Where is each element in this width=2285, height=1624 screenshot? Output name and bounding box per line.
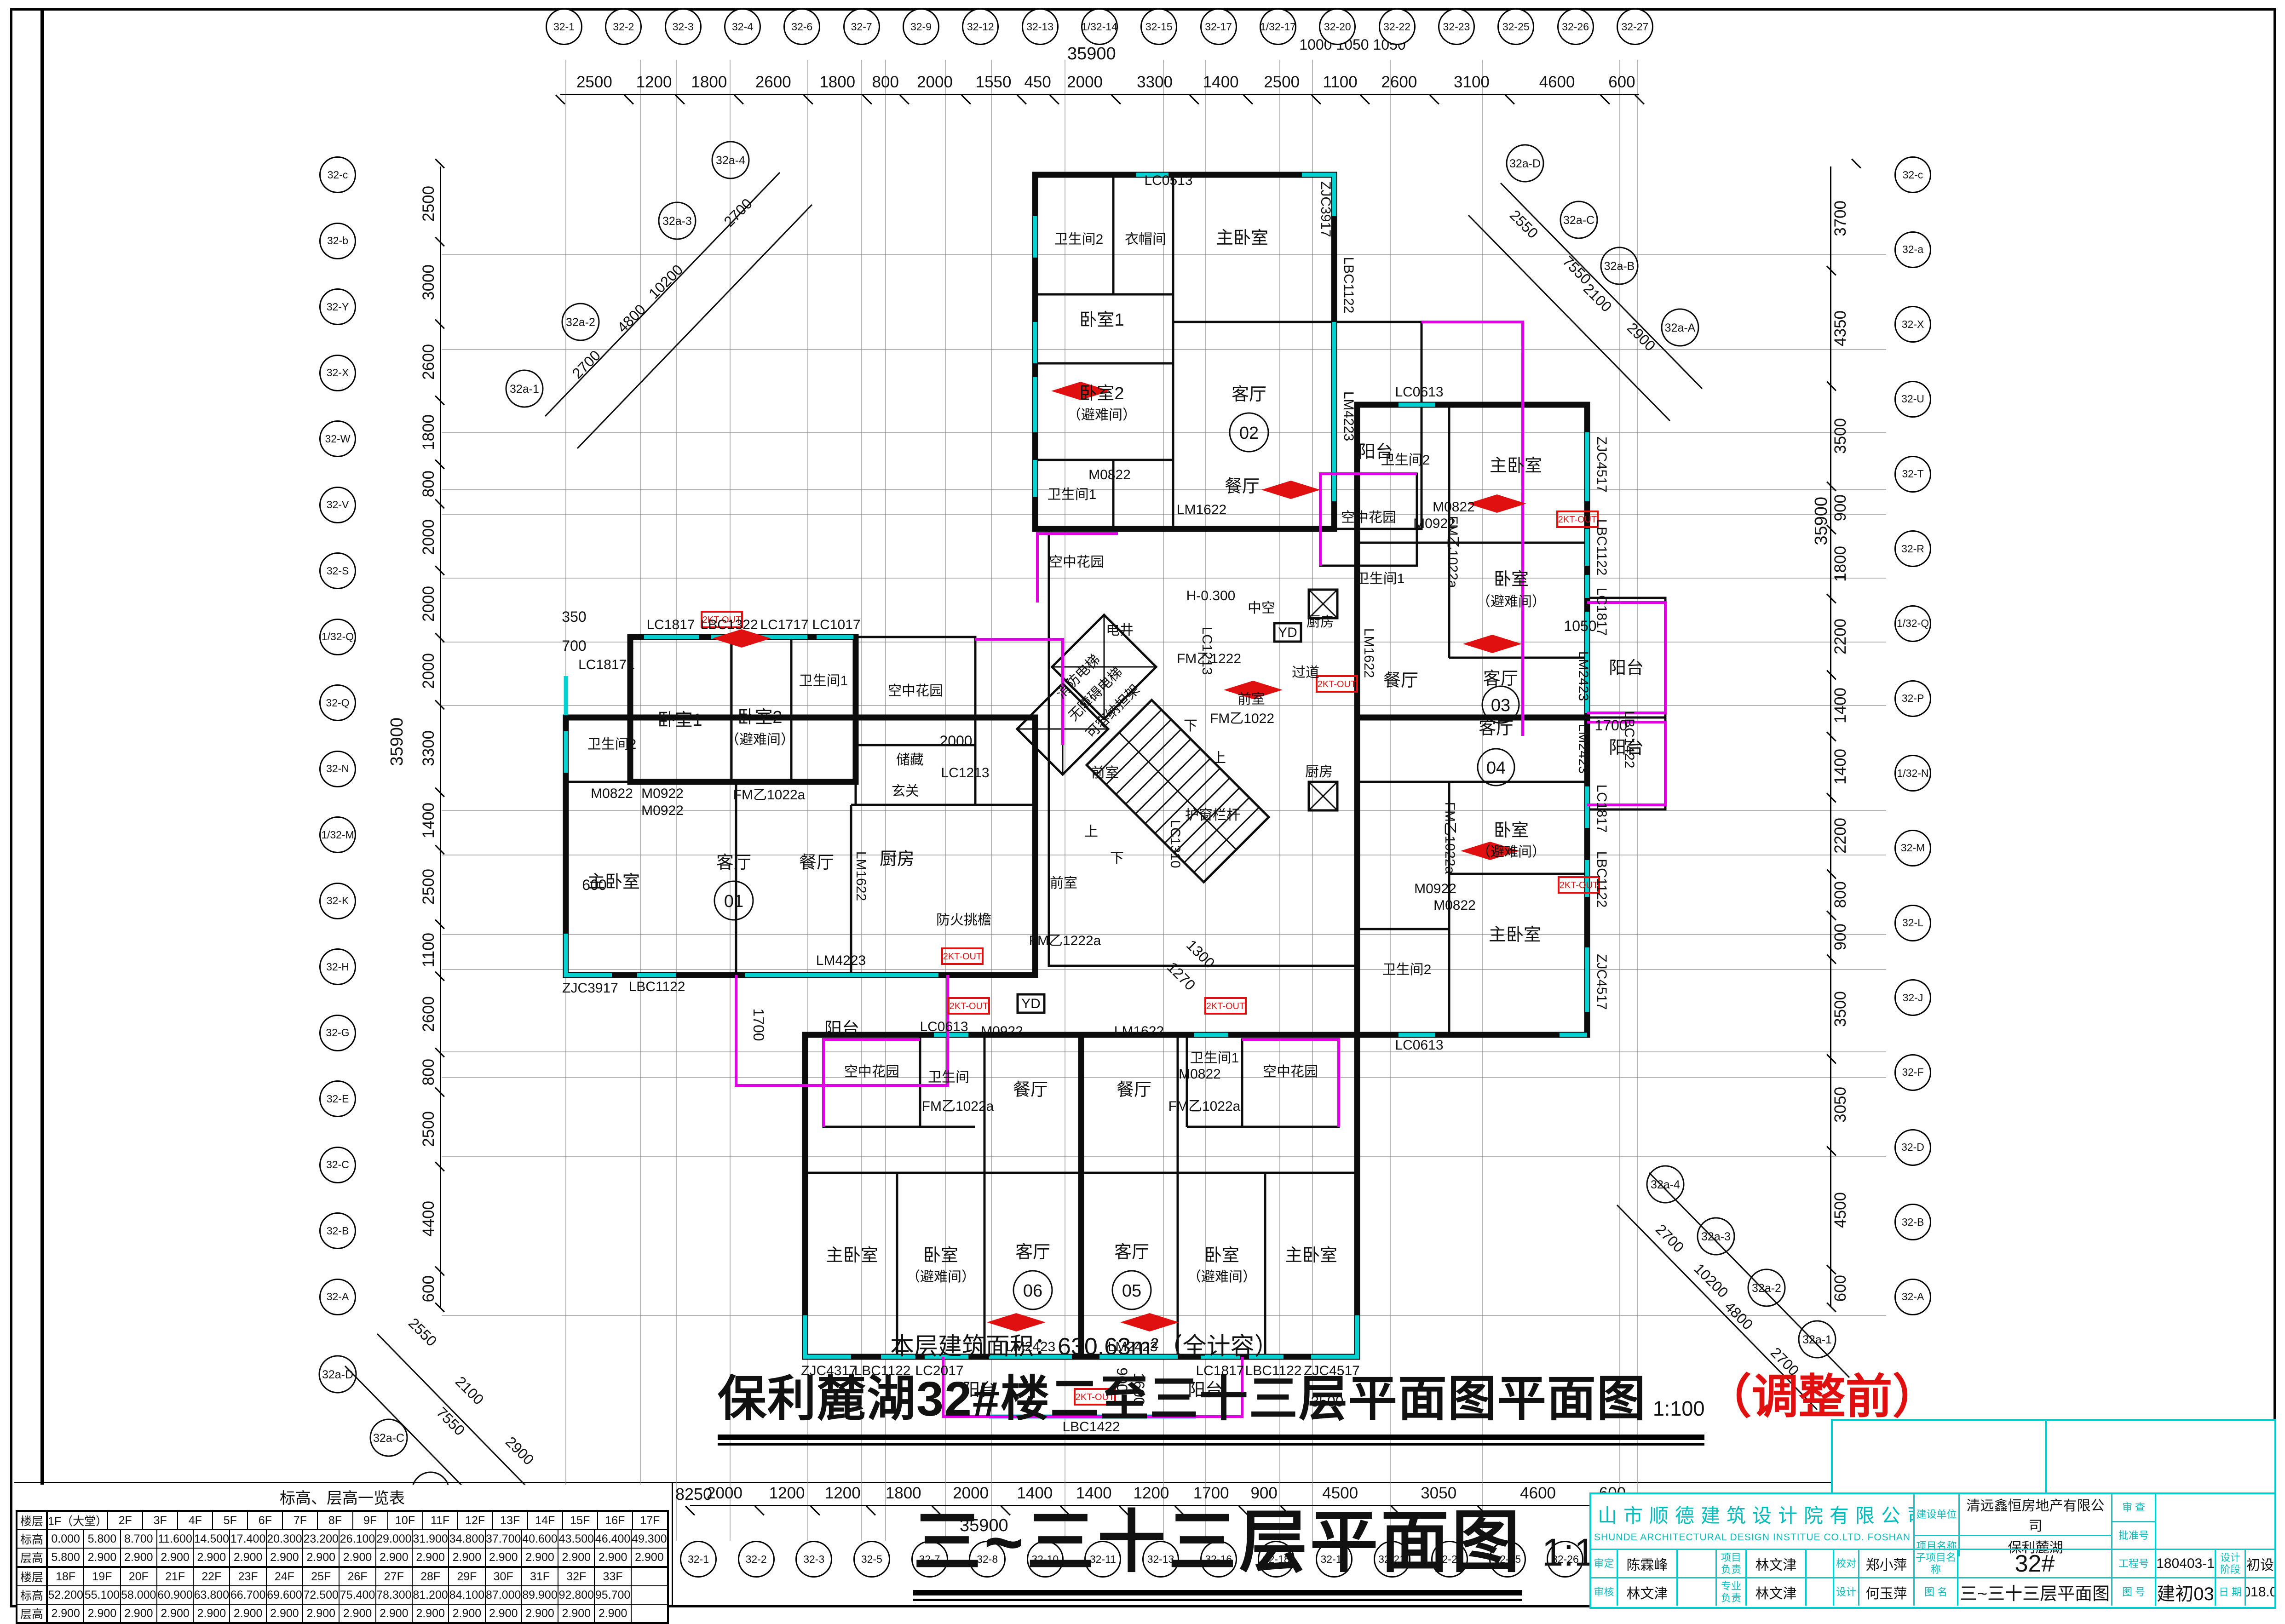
room-label: 卧室2 — [1079, 384, 1124, 403]
svg-text:LC1817: LC1817 — [646, 617, 695, 632]
table-cell: 16F — [597, 1512, 632, 1529]
room-label: 客厅 — [1114, 1243, 1149, 1262]
svg-text:1270: 1270 — [1164, 958, 1199, 993]
table-cell: 2.900 — [412, 1549, 448, 1566]
room-label: 餐厅 — [1383, 671, 1418, 690]
table-cell: 19F — [83, 1568, 120, 1585]
table-cell: 92.800 — [558, 1586, 594, 1604]
checker-name: 郑小萍 — [1858, 1550, 1913, 1577]
table-cell: 2.900 — [120, 1549, 156, 1566]
room-label: 客厅 — [1479, 719, 1514, 738]
svg-text:FM乙1022a: FM乙1022a — [1445, 516, 1460, 588]
table-cell: 30F — [485, 1568, 521, 1585]
diagonal-dim: 2100 — [452, 1373, 487, 1408]
unit-number: 04 — [1486, 758, 1506, 778]
svg-text:LC1817a: LC1817a — [578, 657, 634, 672]
svg-text:LC1017: LC1017 — [812, 617, 860, 632]
axis-bubble: 32a-3 — [1701, 1230, 1731, 1243]
room-label: 玄关 — [892, 784, 919, 799]
svg-text:LM4223: LM4223 — [816, 953, 866, 968]
dimension-segment: 2600 — [1364, 74, 1434, 94]
spare-cell — [1676, 1550, 1715, 1577]
spare-cell — [1805, 1550, 1833, 1577]
svg-text:LBC1322: LBC1322 — [700, 617, 758, 632]
grid-axis-bubble: 32-E — [319, 1080, 356, 1117]
axis-bubble: 32a-A — [1665, 321, 1696, 334]
axis-bubble: 32a-D — [322, 1368, 353, 1381]
grid-axis-bubble: 32-S — [319, 552, 356, 589]
room-label: 餐厅 — [1117, 1080, 1151, 1100]
table-cell: 2.900 — [448, 1605, 484, 1622]
table-cell: 2.900 — [339, 1549, 375, 1566]
room-label: （避难间） — [1477, 594, 1546, 609]
svg-text:LC1310: LC1310 — [1168, 820, 1183, 868]
diagonal-dim: 7550 — [1560, 252, 1594, 287]
room-label: 阳台 — [824, 1020, 859, 1039]
diagonal-dim: 10200 — [1691, 1260, 1732, 1301]
dimension-segment: 800 — [1831, 874, 1856, 915]
grid-axis-bubble: 32-1 — [680, 1541, 717, 1578]
table-cell: 18F — [47, 1568, 83, 1585]
room-label: 餐厅 — [1013, 1080, 1048, 1100]
table-cell: 26F — [339, 1568, 375, 1585]
svg-text:M0922: M0922 — [1414, 881, 1456, 896]
svg-text:FM乙1022a: FM乙1022a — [1442, 802, 1457, 874]
row-header: 层高 — [17, 1549, 47, 1566]
table-cell: 87.000 — [485, 1586, 521, 1604]
dimension-segment: 2200 — [1831, 598, 1856, 675]
grid-axis-bubble: 32-4 — [724, 8, 761, 45]
table-grid: 楼层1F（大堂）2F3F4F5F6F7F8F9F10F11F12F13F14F1… — [16, 1510, 669, 1624]
table-cell: 4F — [177, 1512, 212, 1529]
table-cell: 2.900 — [631, 1549, 667, 1566]
svg-text:2KT-OUT: 2KT-OUT — [950, 1001, 988, 1011]
table-cell: 9F — [352, 1512, 387, 1529]
table-cell: 2.900 — [594, 1605, 630, 1622]
dimension-segment: 2600 — [415, 976, 440, 1052]
grid-axis-bubble: 32-2 — [605, 8, 642, 45]
dimension-segment: 1100 — [1316, 74, 1364, 94]
dimension-segment: 3100 — [1434, 74, 1510, 94]
table-cell: 2.900 — [375, 1549, 412, 1566]
room-label: 客厅 — [1015, 1243, 1050, 1262]
designer-name: 何玉萍 — [1858, 1578, 1913, 1606]
dimension-segment: 2500 — [415, 1092, 440, 1167]
table-cell: 15F — [562, 1512, 597, 1529]
axis-bubble: 32a-C — [1563, 214, 1594, 227]
grid-axis-bubble: 32-T — [1894, 456, 1931, 493]
table-cell: 32F — [558, 1568, 594, 1585]
room-label: 卫生间2 — [1054, 232, 1104, 247]
dimension-segment: 900 — [1831, 915, 1856, 958]
checker-label: 校对 — [1833, 1550, 1858, 1577]
grid-axis-bubble: 32-b — [319, 223, 356, 259]
room-label: 电井 — [1106, 623, 1134, 638]
dimension-segment: 3700 — [1831, 166, 1856, 270]
table-cell: 2.900 — [47, 1605, 83, 1622]
table-title: 标高、层高一览表 — [16, 1485, 669, 1510]
dimension-segment: 1100 — [415, 924, 440, 976]
table-cell: 37.700 — [485, 1530, 521, 1548]
grid-axis-bubble: 32-9 — [903, 8, 939, 45]
diagonal-dim: 2100 — [1580, 280, 1615, 315]
floor-area-note: 本层建筑面积：630.63m²（全计容） — [890, 1327, 1278, 1361]
room-label: 主卧室 — [1285, 1246, 1337, 1265]
axis-bubble: 32a-C — [373, 1432, 404, 1445]
subproject-value: 32# — [1957, 1550, 2111, 1577]
company-name-en: SHUNDE ARCHITECTURAL DESIGN INSTITUE CO.… — [1594, 1532, 1911, 1543]
table-cell: 20F — [120, 1568, 156, 1585]
spare-cell — [1805, 1578, 1833, 1606]
table-cell: 11.600 — [156, 1530, 193, 1548]
row-header: 楼层 — [17, 1512, 47, 1529]
grid-axis-bubble: 32-A — [1894, 1279, 1931, 1315]
svg-text:M0822: M0822 — [1433, 898, 1476, 913]
table-cell: 28F — [412, 1568, 448, 1585]
table-cell: 2.900 — [120, 1605, 156, 1622]
table-cell: 2.900 — [83, 1549, 120, 1566]
left-axis-bubbles: 32-c32-b32-Y32-X32-W32-V32-S1/32-Q32-Q32… — [319, 156, 356, 1315]
table-cell: 2.900 — [485, 1549, 521, 1566]
dimension-segment: 2000 — [415, 504, 440, 571]
level-height-table: 标高、层高一览表 楼层1F（大堂）2F3F4F5F6F7F8F9F10F11F1… — [16, 1485, 669, 1624]
row-header: 层高 — [17, 1605, 47, 1622]
table-cell: 2.900 — [375, 1605, 412, 1622]
table-cell — [631, 1586, 667, 1604]
sheetname-label: 图 名 — [1913, 1578, 1957, 1606]
dimension-segment: 2500 — [415, 166, 440, 241]
room-label: 卫生间1 — [1048, 487, 1097, 502]
grid-axis-bubble: 32-X — [319, 355, 356, 391]
table-cell: 24F — [266, 1568, 302, 1585]
room-label: 主卧室 — [826, 1246, 878, 1265]
dimension-segment: 1800 — [679, 74, 738, 94]
top-total-dimension: 35900 — [1067, 44, 1116, 64]
spare-cell — [1676, 1578, 1715, 1606]
room-label: 卫生间1 — [1356, 571, 1405, 586]
sheetname-value: 三~三十三层平面图 — [1957, 1578, 2111, 1606]
svg-text:ZJC3917: ZJC3917 — [1318, 181, 1333, 237]
table-cell: 8F — [317, 1512, 352, 1529]
room-label: 客厅 — [1232, 385, 1266, 404]
table-cell: 52.200 — [47, 1586, 83, 1604]
table-cell: 2.900 — [558, 1549, 594, 1566]
date-label: 日 期 — [2215, 1578, 2245, 1606]
svg-text:M0922: M0922 — [641, 786, 684, 801]
dimension-segment: 2000 — [1054, 74, 1116, 94]
table-cell: 2.900 — [302, 1549, 339, 1566]
dimension-segment: 4400 — [415, 1166, 440, 1271]
sheetno-label: 图 号 — [2111, 1578, 2155, 1606]
table-cell: 34.800 — [448, 1530, 484, 1548]
unit-number: 05 — [1122, 1281, 1141, 1301]
dimension-segment: 1400 — [1831, 736, 1856, 798]
svg-text:700: 700 — [562, 637, 586, 654]
unit-number: 02 — [1239, 424, 1259, 443]
table-cell: 2.900 — [156, 1605, 193, 1622]
svg-text:2KT-OUT: 2KT-OUT — [1318, 679, 1356, 689]
svg-text:ZJC4517: ZJC4517 — [1594, 436, 1609, 493]
left-dimension-chain: 2500300026001800800200020002000330014002… — [415, 166, 441, 1307]
dimension-segment: 600 — [1831, 1269, 1856, 1307]
table-cell: 3F — [142, 1512, 177, 1529]
grid-axis-bubble: 1/32-14 — [1081, 8, 1118, 45]
dimension-segment: 1550 — [966, 74, 1021, 94]
diagonal-dim: 2550 — [405, 1314, 440, 1349]
dimension-segment: 2600 — [415, 324, 440, 400]
stage-value: 初设 — [2245, 1550, 2274, 1577]
diagonal-dim: 2700 — [720, 195, 755, 230]
table-cell: 2.900 — [83, 1605, 120, 1622]
grid-axis-bubble: 32-M — [1894, 830, 1931, 867]
jobno-value: 180403-1 — [2155, 1550, 2215, 1577]
grid-axis-bubble: 32-3 — [795, 1541, 832, 1578]
table-cell: 60.900 — [156, 1586, 193, 1604]
table-cell: 13F — [492, 1512, 527, 1529]
svg-text:LC0613: LC0613 — [920, 1019, 968, 1034]
right-axis-bubbles: 32-c32-a32-X32-U32-T32-R1/32-Q32-P1/32-N… — [1894, 156, 1931, 1315]
table-cell: 20.300 — [266, 1530, 302, 1548]
svg-text:ZJC4517: ZJC4517 — [1594, 954, 1609, 1010]
corner-axes-top-left: 32a-1 32a-2 32a-3 32a-4 2700 4800 10200 … — [506, 142, 812, 448]
room-label: 卧室1 — [1079, 310, 1124, 330]
svg-text:FM乙1222a: FM乙1222a — [1029, 933, 1101, 948]
unit04-labels: 客厅 04 阳台 卧室 （避难间） 主卧室 卫生间2 — [1382, 719, 1644, 977]
dimension-segment: 600 — [415, 1271, 440, 1307]
table-cell: 89.900 — [521, 1586, 558, 1604]
grid-axis-bubble: 32-27 — [1617, 8, 1653, 45]
room-label: 空中花园 — [1263, 1064, 1318, 1079]
table-cell: 14F — [527, 1512, 562, 1529]
table-cell: 33F — [594, 1568, 630, 1585]
grid-axis-bubble: 32-N — [319, 751, 356, 787]
table-cell: 29.000 — [375, 1530, 412, 1548]
grid-axis-bubble: 32-H — [319, 948, 356, 985]
dimension-segment: 1800 — [415, 400, 440, 464]
svg-text:2000: 2000 — [939, 733, 972, 749]
table-cell: 81.200 — [412, 1586, 448, 1604]
dimension-segment: 2000 — [904, 74, 966, 94]
room-label: 卧室 — [1494, 570, 1529, 589]
right-dimension-chain: 3700435035009001800220014001400220080090… — [1830, 166, 1856, 1307]
svg-text:1050: 1050 — [1564, 618, 1596, 634]
room-label: 餐厅 — [1225, 477, 1260, 496]
signature-box-right — [2045, 1419, 2276, 1496]
table-cell: 2.900 — [558, 1605, 594, 1622]
table-cell: 2.900 — [521, 1549, 558, 1566]
code-labels: LC1817 LBC1322 LC1717 LC1017 LC1817a M08… — [562, 173, 1637, 1435]
stair-direction: 下 — [1184, 718, 1197, 734]
svg-text:FM乙1222: FM乙1222 — [1177, 651, 1241, 666]
sheetno-value: 建初03 — [2155, 1578, 2215, 1606]
right-total-dimension: 35900 — [1812, 497, 1831, 545]
room-label: 过道 — [1292, 665, 1319, 680]
subproject-label: 子项目名称 — [1913, 1550, 1957, 1577]
table-cell: 55.100 — [83, 1586, 120, 1604]
approver-label: 审定 — [1591, 1550, 1617, 1577]
room-label: 卫生间1 — [799, 673, 848, 689]
table-cell: 75.400 — [339, 1586, 375, 1604]
axis-bubble: 32a-1 — [510, 383, 539, 396]
review-value — [2155, 1494, 2274, 1549]
pm-name: 林文津 — [1745, 1550, 1805, 1577]
room-label: 卧室 — [923, 1246, 958, 1265]
table-cell: 5.800 — [83, 1530, 120, 1548]
svg-text:LM1622: LM1622 — [1177, 502, 1226, 517]
dimension-segment: 800 — [415, 1052, 440, 1092]
room-label: 储藏 — [896, 752, 924, 768]
table-cell: 6F — [247, 1512, 282, 1529]
svg-text:FM乙1022a: FM乙1022a — [922, 1099, 994, 1114]
svg-text:LC0613: LC0613 — [1395, 1038, 1443, 1053]
svg-text:LM1622: LM1622 — [1114, 1024, 1164, 1039]
room-label: 卫生间 — [928, 1070, 969, 1085]
table-cell: 23.200 — [302, 1530, 339, 1548]
diagonal-dim: 4800 — [614, 301, 649, 336]
svg-text:M0822: M0822 — [1179, 1067, 1221, 1082]
grid-axis-bubble: 1/32-17 — [1260, 8, 1296, 45]
dimension-segment: 1400 — [1194, 74, 1248, 94]
svg-text:LM1622: LM1622 — [853, 851, 869, 901]
dimension-segment: 800 — [867, 74, 904, 94]
approve-label: 批准号 — [2112, 1522, 2155, 1549]
grid-axis-bubble: 32-a — [1894, 231, 1931, 268]
unit-number: 06 — [1023, 1281, 1042, 1301]
table-cell: 95.700 — [594, 1586, 630, 1604]
table-cell: 2F — [107, 1512, 142, 1529]
table-cell: 2.900 — [229, 1605, 265, 1622]
grid-axis-bubble: 1/32-M — [319, 816, 356, 853]
table-cell: 2.900 — [594, 1549, 630, 1566]
svg-text:600: 600 — [582, 877, 606, 893]
grid-axis-bubble: 32-C — [319, 1147, 356, 1183]
dimension-segment: 800 — [415, 464, 440, 504]
title-block: 佛山市顺德建筑设计院有限公司 SHUNDE ARCHITECTURAL DESI… — [1589, 1492, 2276, 1609]
svg-text:LC1817: LC1817 — [1594, 784, 1609, 832]
diagonal-dim: 2550 — [1507, 207, 1542, 241]
table-cell: 2.900 — [339, 1605, 375, 1622]
svg-text:LBC1122: LBC1122 — [1594, 519, 1609, 576]
table-cell: 23F — [229, 1568, 265, 1585]
dimension-segment: 3300 — [1116, 74, 1194, 94]
grid-axis-bubble: 32-D — [1894, 1129, 1931, 1166]
axis-bubble: 32a-D — [1509, 157, 1541, 170]
grid-axis-bubble: 32-20 — [1319, 8, 1356, 45]
svg-text:LBC1122: LBC1122 — [629, 979, 685, 994]
top-axis-bubbles: 32-132-232-332-432-632-732-932-1232-131/… — [546, 8, 1653, 45]
grid-axis-bubble: 32-25 — [1497, 8, 1534, 45]
jobno-label: 工程号 — [2111, 1550, 2155, 1577]
table-cell: 25F — [302, 1568, 339, 1585]
table-cell: 2.900 — [193, 1605, 229, 1622]
dimension-segment: 4500 — [1831, 1151, 1856, 1269]
table-cell — [631, 1605, 667, 1622]
grid-axis-bubble: 32-17 — [1200, 8, 1237, 45]
room-label: 客厅 — [716, 853, 751, 872]
room-label: 主卧室 — [1490, 456, 1542, 476]
stair-direction: 上 — [1084, 824, 1098, 839]
grid-axis-bubble: 32-12 — [962, 8, 999, 45]
grid-axis-bubble: 32-V — [319, 487, 356, 523]
diagonal-dim: 2700 — [569, 347, 604, 382]
grid-axis-bubble: 32-K — [319, 883, 356, 919]
table-cell: 2.900 — [302, 1605, 339, 1622]
svg-text:ZJC3917: ZJC3917 — [562, 981, 618, 996]
axis-bubble: 32a-2 — [566, 316, 595, 329]
svg-text:LM2423: LM2423 — [1576, 651, 1591, 701]
svg-text:FM乙1022a: FM乙1022a — [733, 787, 806, 803]
dimension-segment: 1200 — [628, 74, 679, 94]
svg-text:FM乙1022: FM乙1022 — [1210, 711, 1274, 726]
svg-text:LC1213: LC1213 — [1199, 626, 1214, 675]
grid-axis-bubble: 32-23 — [1438, 8, 1475, 45]
reviewer-label: 审核 — [1591, 1578, 1617, 1606]
room-label: 主卧室 — [1489, 925, 1541, 945]
owner-value: 清远鑫恒房地产有限公司 — [1958, 1494, 2111, 1535]
dimension-segment: 4350 — [1831, 270, 1856, 386]
room-label: 卫生间2 — [1381, 453, 1430, 468]
approver-name: 陈霖峰 — [1617, 1550, 1676, 1577]
grid-axis-bubble: 1/32-Q — [319, 619, 356, 655]
table-cell: 78.300 — [375, 1586, 412, 1604]
axis-bubble: 32a-4 — [716, 154, 745, 167]
room-label: 卫生间2 — [1382, 962, 1432, 977]
diagonal-dim: 10200 — [645, 261, 686, 302]
dimension-segment: 1200 — [759, 1485, 815, 1505]
room-label: 卧室 — [1204, 1246, 1239, 1265]
table-cell: 49.300 — [631, 1530, 667, 1548]
svg-text:LM1622: LM1622 — [1361, 628, 1376, 678]
grid-axis-bubble: 32-7 — [843, 8, 880, 45]
review-label: 审 查 — [2112, 1494, 2155, 1522]
designer-label: 设计 — [1833, 1578, 1858, 1606]
table-cell: 27F — [375, 1568, 412, 1585]
stair-direction: 下 — [1110, 851, 1124, 866]
svg-text:LC0513: LC0513 — [1144, 173, 1192, 188]
pm-label: 项目负责 — [1715, 1550, 1745, 1577]
svg-text:2KT-OUT: 2KT-OUT — [1206, 1001, 1245, 1011]
grid-axis-bubble: 32-G — [319, 1015, 356, 1051]
note-label: 护窗栏杆 — [1185, 808, 1240, 823]
svg-text:LM4223: LM4223 — [1341, 391, 1356, 441]
grid-axis-bubble: 32-3 — [665, 8, 702, 45]
lead-label: 专业负责 — [1715, 1578, 1745, 1606]
grid-axis-bubble: 32-13 — [1022, 8, 1059, 45]
room-label: 衣帽间 — [1125, 232, 1166, 247]
grid-axis-bubble: 32-2 — [738, 1541, 775, 1578]
dimension-segment: 450 — [1021, 74, 1054, 94]
room-label: 卫生间2 — [587, 737, 637, 752]
svg-text:M0822: M0822 — [591, 786, 633, 801]
room-label: 厨房 — [880, 849, 915, 869]
grid-axis-bubble: 32-F — [1894, 1054, 1931, 1091]
grid-axis-bubble: 32-c — [319, 156, 356, 193]
table-cell: 21F — [156, 1568, 193, 1585]
svg-text:M0822: M0822 — [1433, 499, 1475, 515]
svg-text:2KT-OUT: 2KT-OUT — [1560, 880, 1598, 890]
lead-name: 林文津 — [1745, 1578, 1805, 1606]
grid-axis-bubble: 32-15 — [1140, 8, 1177, 45]
room-label: 主卧室 — [1216, 229, 1268, 248]
owner-label: 建设单位 — [1915, 1494, 1958, 1535]
grid-axis-bubble: 32-A — [319, 1279, 356, 1315]
row-header: 标高 — [17, 1530, 47, 1548]
row-header: 楼层 — [17, 1568, 47, 1585]
room-label: 前室 — [1050, 876, 1077, 891]
room-label: 前室 — [1237, 692, 1265, 707]
dimension-segment: 2000 — [415, 637, 440, 705]
grid-axis-bubble: 32-c — [1894, 156, 1931, 193]
